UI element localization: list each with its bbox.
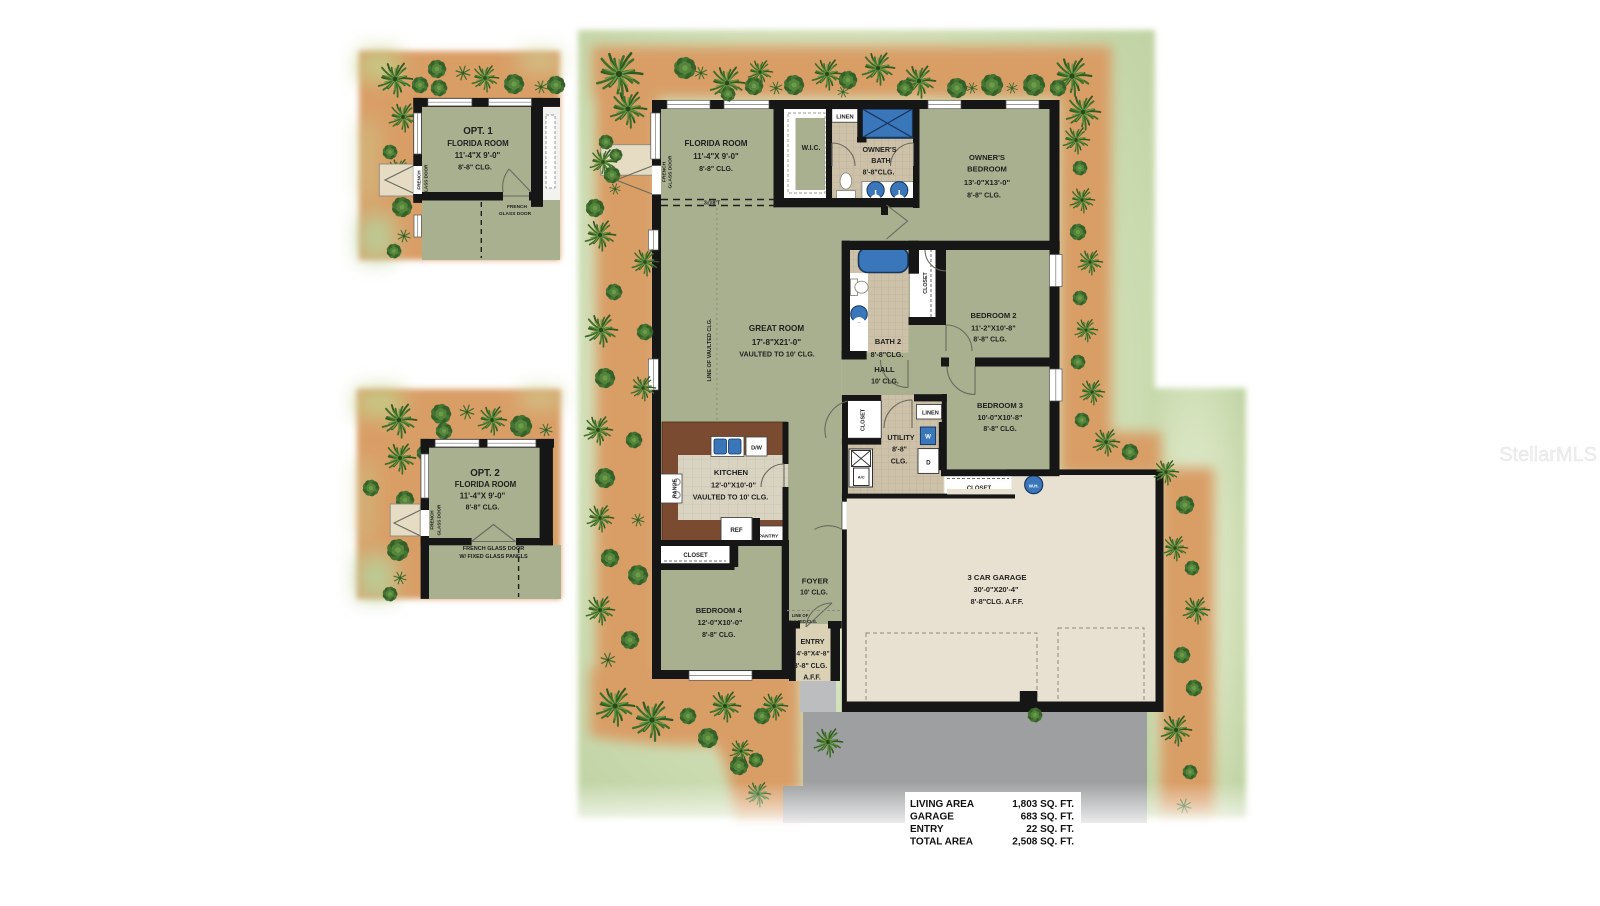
svg-text:LINEN: LINEN — [836, 115, 853, 121]
svg-text:FOYER: FOYER — [802, 577, 829, 586]
svg-text:8'-8"CLG. A.F.F.: 8'-8"CLG. A.F.F. — [971, 597, 1024, 606]
svg-text:FRENCH GLASS DOOR: FRENCH GLASS DOOR — [463, 546, 524, 552]
svg-text:W: W — [925, 434, 931, 441]
svg-text:VAULTED CLG.: VAULTED CLG. — [787, 619, 817, 624]
svg-text:UTILITY: UTILITY — [887, 433, 914, 442]
svg-text:22 SQ. FT.: 22 SQ. FT. — [1026, 824, 1074, 835]
svg-text:GREAT ROOM: GREAT ROOM — [749, 324, 804, 333]
svg-text:VAULTED TO 10' CLG.: VAULTED TO 10' CLG. — [693, 493, 769, 502]
svg-text:8'-8"CLG.: 8'-8"CLG. — [863, 170, 895, 177]
svg-text:BATH: BATH — [871, 156, 890, 165]
svg-text:BEDROOM 3: BEDROOM 3 — [977, 401, 1023, 410]
svg-text:D/W: D/W — [751, 446, 763, 452]
svg-text:KITCHEN: KITCHEN — [714, 468, 749, 477]
svg-text:FLORIDA ROOM: FLORIDA ROOM — [447, 139, 509, 148]
svg-text:GLASS DOOR: GLASS DOOR — [668, 155, 674, 188]
svg-text:StellarMLS: StellarMLS — [1499, 444, 1597, 466]
svg-text:LINEN: LINEN — [922, 410, 939, 416]
svg-text:683 SQ. FT.: 683 SQ. FT. — [1021, 812, 1075, 823]
svg-text:RANGE: RANGE — [673, 478, 679, 498]
svg-text:13'-0"X13'-0": 13'-0"X13'-0" — [964, 178, 1011, 187]
svg-text:VAULTED TO 10' CLG.: VAULTED TO 10' CLG. — [739, 350, 815, 359]
svg-text:BATH 2: BATH 2 — [875, 337, 901, 346]
svg-text:CLOSET: CLOSET — [861, 408, 867, 431]
svg-text:8'-8" CLG.: 8'-8" CLG. — [699, 166, 733, 173]
svg-text:ENTRY: ENTRY — [910, 824, 944, 835]
svg-text:A/C: A/C — [858, 475, 865, 480]
svg-text:8'-8" CLG.: 8'-8" CLG. — [458, 165, 492, 172]
svg-text:GLASS DOOR: GLASS DOOR — [424, 164, 429, 196]
svg-text:2,508 SQ. FT.: 2,508 SQ. FT. — [1012, 837, 1074, 848]
svg-text:4'-8"X4'-8": 4'-8"X4'-8" — [796, 651, 829, 658]
svg-text:LIVING AREA: LIVING AREA — [910, 799, 974, 810]
svg-text:8'-8" CLG.: 8'-8" CLG. — [794, 663, 827, 670]
svg-text:OWNER'S: OWNER'S — [969, 153, 1005, 162]
svg-text:12'-0"X10'-0": 12'-0"X10'-0" — [711, 481, 757, 490]
svg-text:1,803 SQ. FT.: 1,803 SQ. FT. — [1012, 799, 1074, 810]
svg-text:10' CLG.: 10' CLG. — [871, 379, 899, 386]
svg-text:8'-8" CLG.: 8'-8" CLG. — [973, 337, 1006, 344]
svg-text:TOTAL AREA: TOTAL AREA — [910, 837, 973, 848]
svg-text:BEDROOM: BEDROOM — [967, 165, 1007, 174]
svg-text:11'-2"X10'-8": 11'-2"X10'-8" — [971, 324, 1016, 333]
svg-text:A.F.F.: A.F.F. — [803, 675, 821, 682]
svg-text:FRENCH: FRENCH — [507, 204, 528, 210]
svg-text:CLOSET: CLOSET — [683, 553, 708, 559]
svg-text:8'-8" CLG.: 8'-8" CLG. — [983, 426, 1016, 433]
svg-text:LINE OF: LINE OF — [792, 613, 809, 618]
svg-text:BEDROOM 4: BEDROOM 4 — [696, 606, 743, 615]
svg-text:ENTRY: ENTRY — [800, 637, 824, 646]
svg-text:OWNER'S: OWNER'S — [862, 145, 896, 154]
svg-text:OPT. 1: OPT. 1 — [463, 126, 493, 137]
svg-text:D: D — [926, 460, 931, 467]
svg-text:10' CLG.: 10' CLG. — [800, 590, 828, 597]
svg-text:12'-0"X10'-0": 12'-0"X10'-0" — [697, 618, 743, 627]
svg-text:17'-8"X21'-0": 17'-8"X21'-0" — [752, 338, 801, 347]
svg-text:GLASS DOOR: GLASS DOOR — [499, 211, 532, 217]
svg-text:FRENCH: FRENCH — [662, 161, 668, 182]
svg-text:3@8'T: 3@8'T — [704, 201, 721, 207]
svg-text:FRENCH: FRENCH — [417, 170, 422, 190]
svg-text:BEDROOM 2: BEDROOM 2 — [971, 311, 1017, 320]
svg-text:PANTRY: PANTRY — [759, 534, 779, 540]
svg-text:FLORIDA ROOM: FLORIDA ROOM — [455, 480, 517, 489]
svg-text:8'-8": 8'-8" — [892, 447, 907, 454]
svg-text:11'-4"X 9'-0": 11'-4"X 9'-0" — [455, 151, 501, 160]
svg-text:8'-8" CLG.: 8'-8" CLG. — [702, 632, 735, 639]
svg-text:10'-0"X10'-8": 10'-0"X10'-8" — [977, 413, 1023, 422]
svg-text:GLASS DOOR: GLASS DOOR — [437, 504, 442, 536]
svg-text:HALL: HALL — [874, 365, 895, 374]
svg-text:CLG.: CLG. — [891, 459, 908, 466]
svg-text:8'-8"CLG.: 8'-8"CLG. — [871, 350, 904, 359]
svg-text:REF: REF — [730, 527, 743, 534]
svg-text:W.I.C.: W.I.C. — [802, 145, 821, 152]
svg-text:8'-8" CLG.: 8'-8" CLG. — [466, 505, 500, 512]
svg-text:30'-0"X20'-4": 30'-0"X20'-4" — [973, 585, 1019, 594]
svg-text:11'-4"X 9'-0": 11'-4"X 9'-0" — [693, 152, 739, 161]
svg-text:8'-8" CLG.: 8'-8" CLG. — [967, 193, 1001, 200]
svg-text:GARAGE: GARAGE — [910, 812, 954, 823]
svg-text:CLOSET: CLOSET — [923, 271, 929, 293]
svg-text:LINE OF VAULTED CLG.: LINE OF VAULTED CLG. — [707, 318, 713, 382]
svg-text:W.H.: W.H. — [1029, 483, 1039, 488]
svg-text:3 CAR GARAGE: 3 CAR GARAGE — [968, 573, 1027, 582]
svg-text:FRENCH: FRENCH — [430, 510, 435, 530]
svg-text:W/ FIXED GLASS PANELS: W/ FIXED GLASS PANELS — [459, 554, 528, 560]
svg-text:11'-4"X 9'-0": 11'-4"X 9'-0" — [460, 492, 506, 501]
svg-text:OPT. 2: OPT. 2 — [470, 468, 500, 479]
svg-text:FLORIDA ROOM: FLORIDA ROOM — [684, 139, 747, 148]
